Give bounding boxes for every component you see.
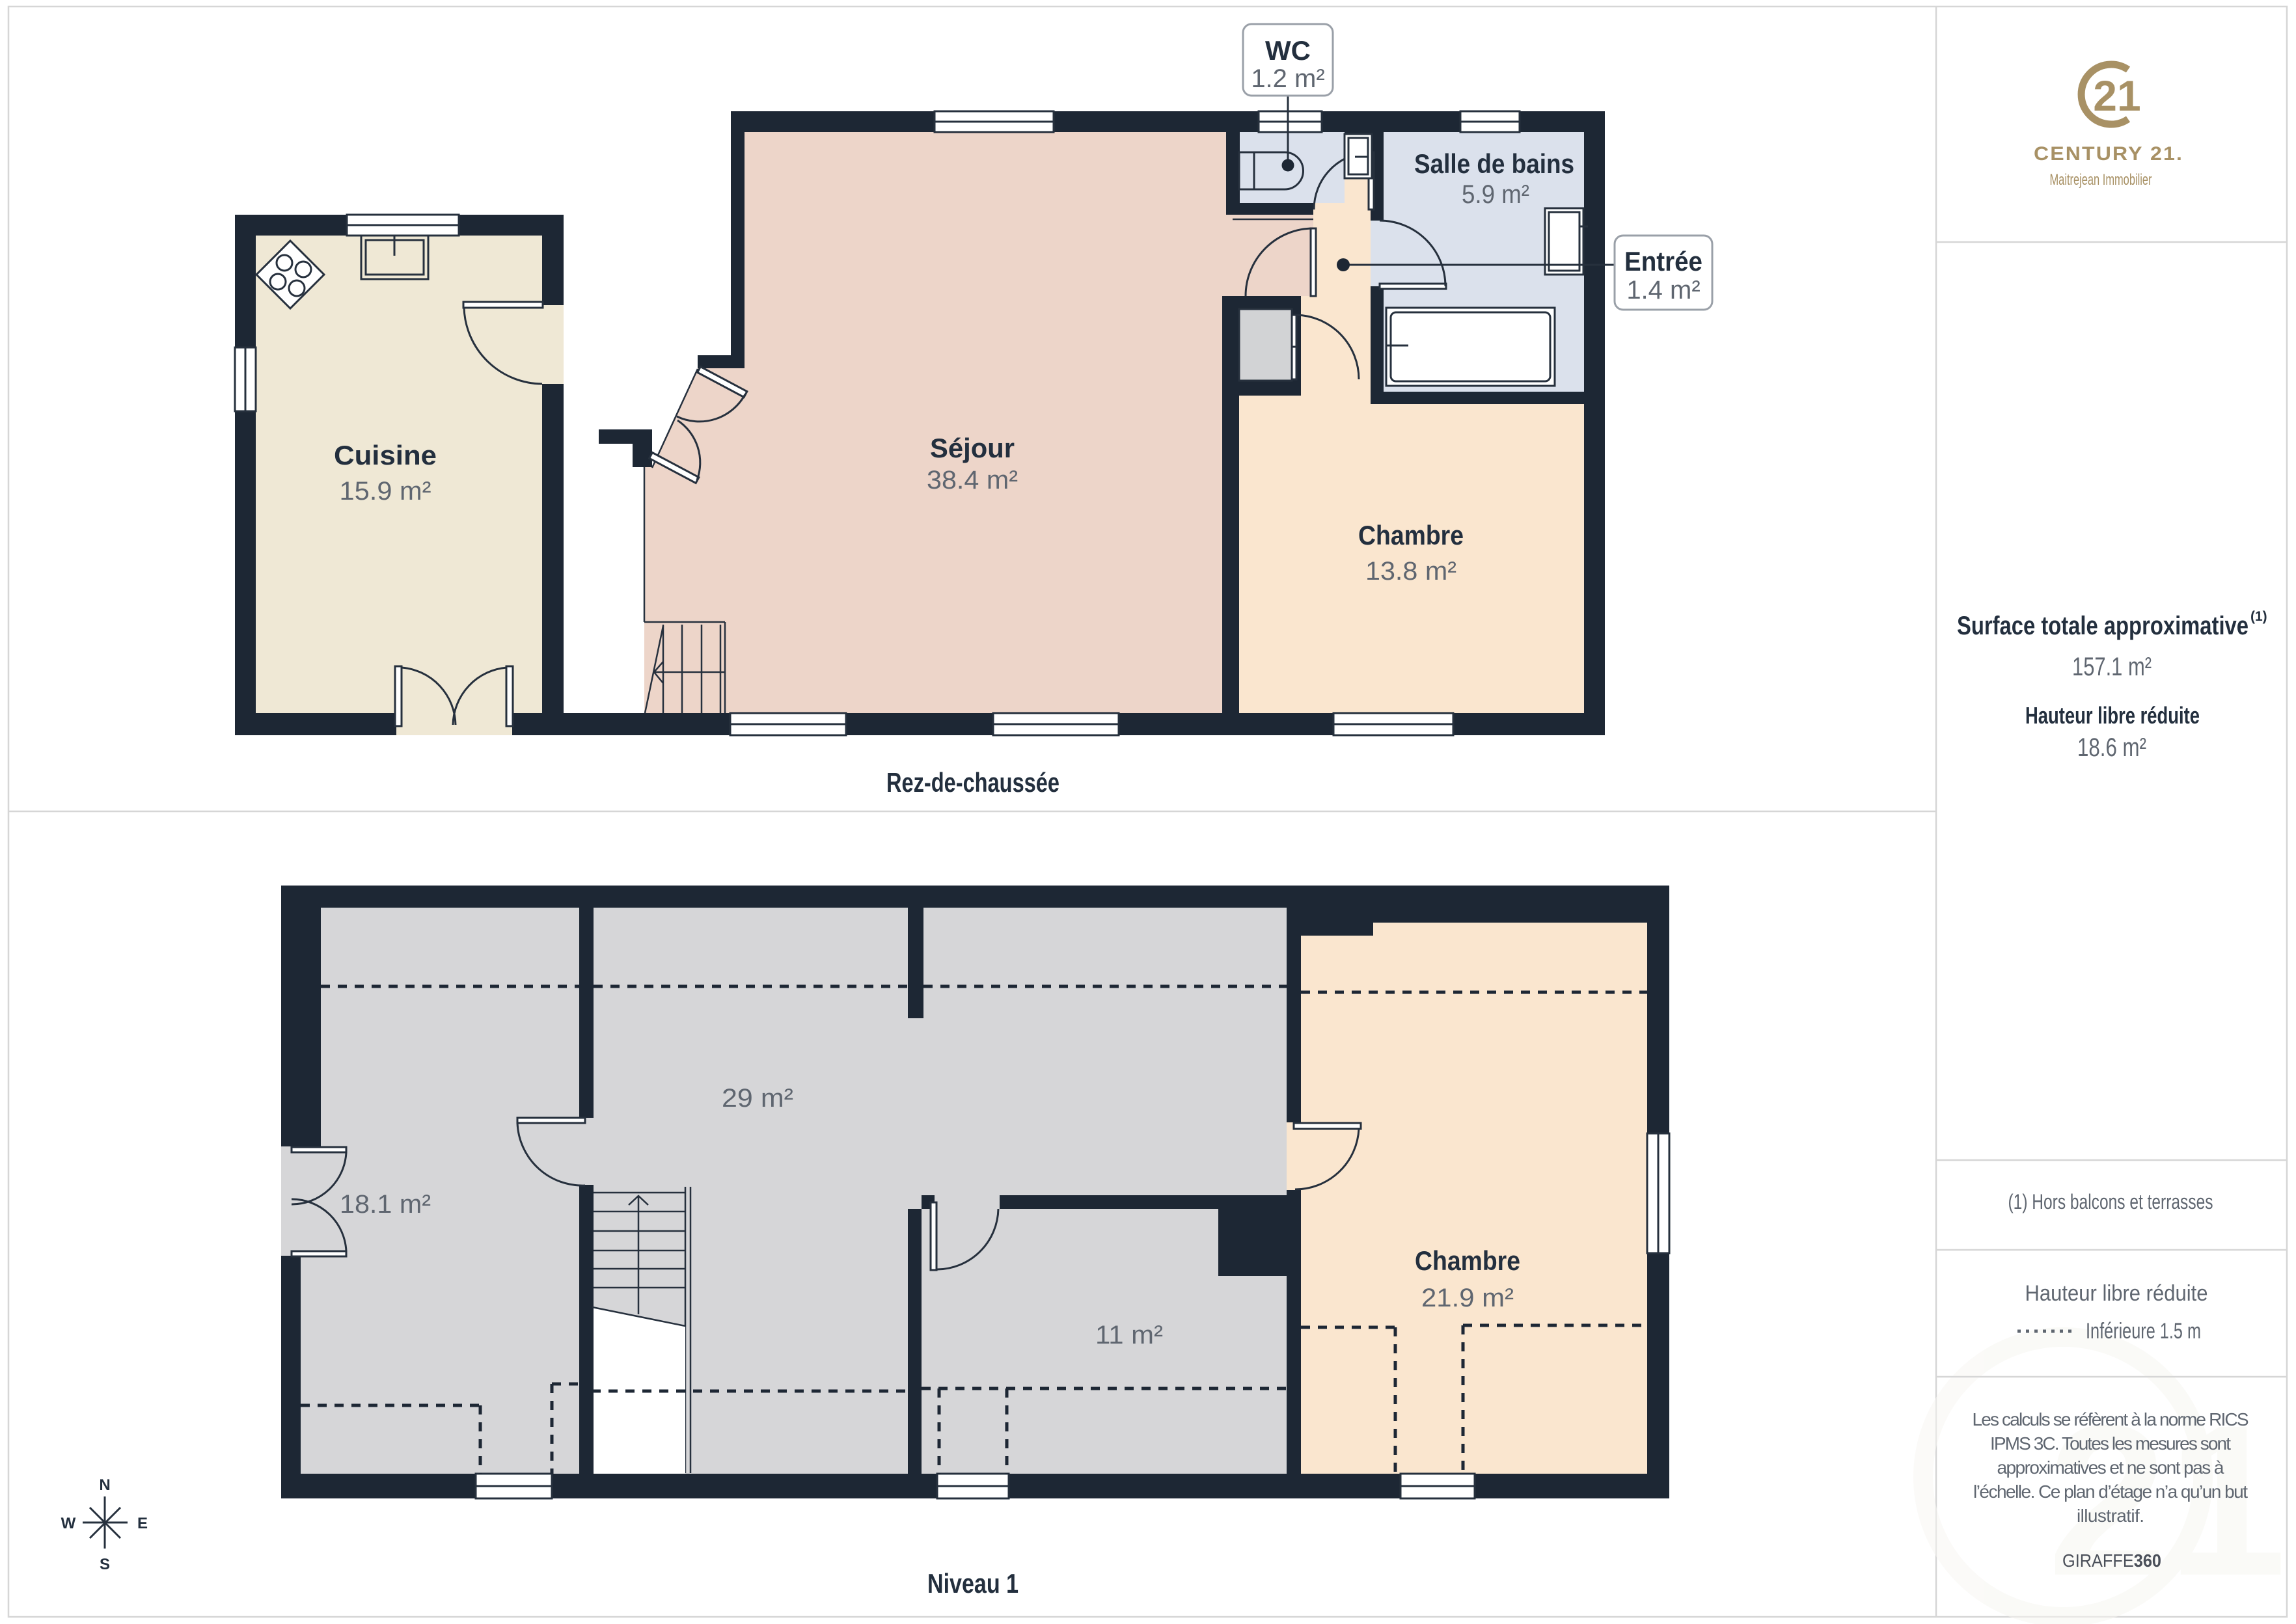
svg-text:38.4 m²: 38.4 m² bbox=[927, 466, 1018, 494]
svg-text:13.8 m²: 13.8 m² bbox=[1365, 557, 1456, 586]
svg-text:WC: WC bbox=[1265, 35, 1311, 66]
svg-text:l’échelle. Ce plan d’étage n’a: l’échelle. Ce plan d’étage n’a qu’un but bbox=[1973, 1482, 2248, 1502]
svg-text:CENTURY 21.: CENTURY 21. bbox=[2034, 143, 2183, 165]
svg-text:15.9 m²: 15.9 m² bbox=[340, 477, 431, 506]
svg-text:18.6 m²: 18.6 m² bbox=[2077, 733, 2146, 762]
svg-text:(1): (1) bbox=[2250, 609, 2267, 624]
svg-text:Chambre: Chambre bbox=[1415, 1245, 1520, 1276]
svg-text:1.2 m²: 1.2 m² bbox=[1251, 64, 1324, 93]
svg-text:Rez-de-chaussée: Rez-de-chaussée bbox=[886, 767, 1059, 798]
svg-text:Les calculs se réfèrent à la n: Les calculs se réfèrent à la norme RICS bbox=[1973, 1409, 2249, 1429]
svg-text:Cuisine: Cuisine bbox=[334, 440, 437, 470]
svg-text:Hauteur libre réduite: Hauteur libre réduite bbox=[2025, 702, 2200, 729]
svg-text:Séjour: Séjour bbox=[930, 433, 1015, 463]
svg-text:approximatives et ne sont pas: approximatives et ne sont pas à bbox=[1997, 1457, 2224, 1478]
svg-text:IPMS 3C. Toutes les mesures so: IPMS 3C. Toutes les mesures sont bbox=[1990, 1433, 2231, 1454]
svg-text:21.9 m²: 21.9 m² bbox=[1421, 1284, 1514, 1312]
svg-text:21: 21 bbox=[2093, 72, 2140, 120]
svg-text:Salle de bains: Salle de bains bbox=[1414, 148, 1574, 179]
svg-text:157.1 m²: 157.1 m² bbox=[2072, 653, 2152, 681]
svg-text:1.4 m²: 1.4 m² bbox=[1626, 276, 1700, 304]
svg-text:W: W bbox=[61, 1515, 76, 1532]
svg-text:Chambre: Chambre bbox=[1358, 520, 1464, 550]
svg-text:N: N bbox=[99, 1476, 110, 1494]
svg-text:Hauteur libre réduite: Hauteur libre réduite bbox=[2025, 1281, 2208, 1306]
svg-text:GIRAFFE360: GIRAFFE360 bbox=[2062, 1550, 2161, 1571]
svg-text:Niveau 1: Niveau 1 bbox=[927, 1568, 1018, 1599]
svg-text:illustratif.: illustratif. bbox=[2077, 1506, 2144, 1526]
svg-text:Surface totale approximative: Surface totale approximative bbox=[1957, 612, 2248, 640]
svg-text:(1) Hors balcons et terrasses: (1) Hors balcons et terrasses bbox=[2008, 1190, 2213, 1213]
svg-text:18.1 m²: 18.1 m² bbox=[340, 1190, 431, 1219]
svg-text:29 m²: 29 m² bbox=[722, 1084, 793, 1113]
svg-text:Entrée: Entrée bbox=[1624, 246, 1702, 277]
svg-text:Maitrejean Immobilier: Maitrejean Immobilier bbox=[2050, 171, 2152, 189]
svg-text:S: S bbox=[100, 1556, 110, 1573]
svg-text:5.9 m²: 5.9 m² bbox=[1462, 180, 1529, 209]
svg-text:E: E bbox=[137, 1515, 148, 1532]
svg-text:Inférieure 1.5 m: Inférieure 1.5 m bbox=[2086, 1319, 2201, 1344]
svg-text:11 m²: 11 m² bbox=[1095, 1321, 1163, 1349]
